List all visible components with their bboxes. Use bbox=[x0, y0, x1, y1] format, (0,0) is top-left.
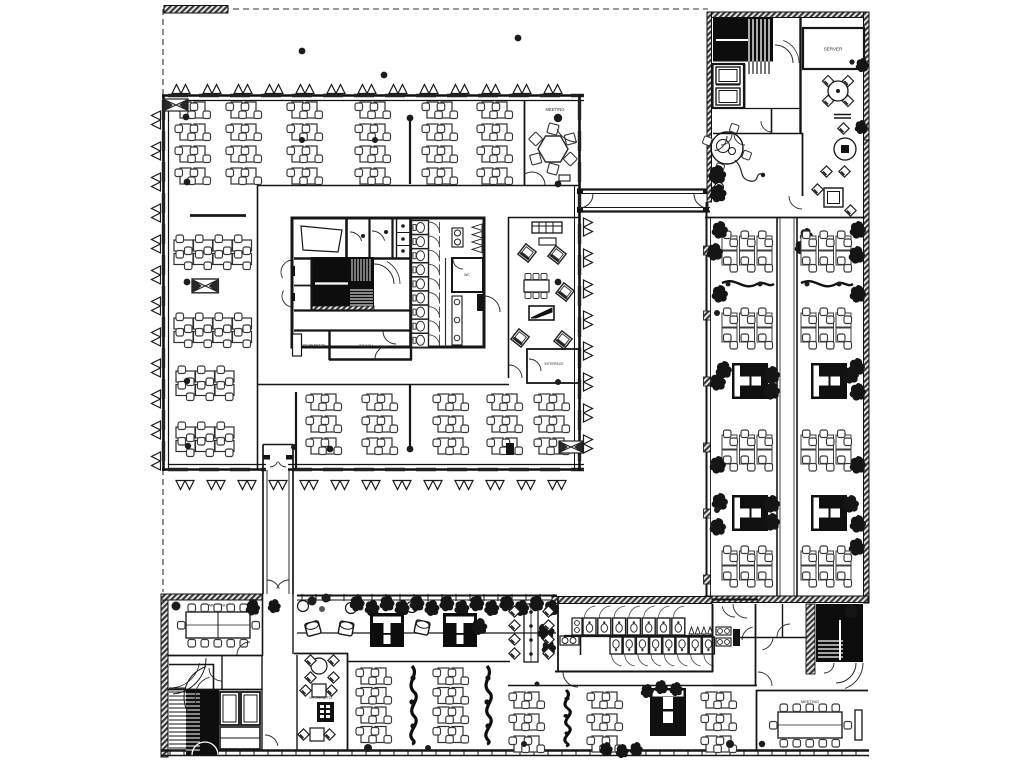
svg-text:SERVER: SERVER bbox=[824, 47, 843, 52]
svg-text:WC: WC bbox=[464, 273, 470, 277]
svg-text:KITCHENETTE: KITCHENETTE bbox=[301, 344, 327, 348]
svg-text:TROOV: TROOV bbox=[359, 343, 374, 348]
svg-text:MEETING: MEETING bbox=[801, 699, 819, 704]
svg-text:INTERFACE: INTERFACE bbox=[544, 362, 564, 366]
svg-text:MEETING: MEETING bbox=[545, 107, 564, 112]
